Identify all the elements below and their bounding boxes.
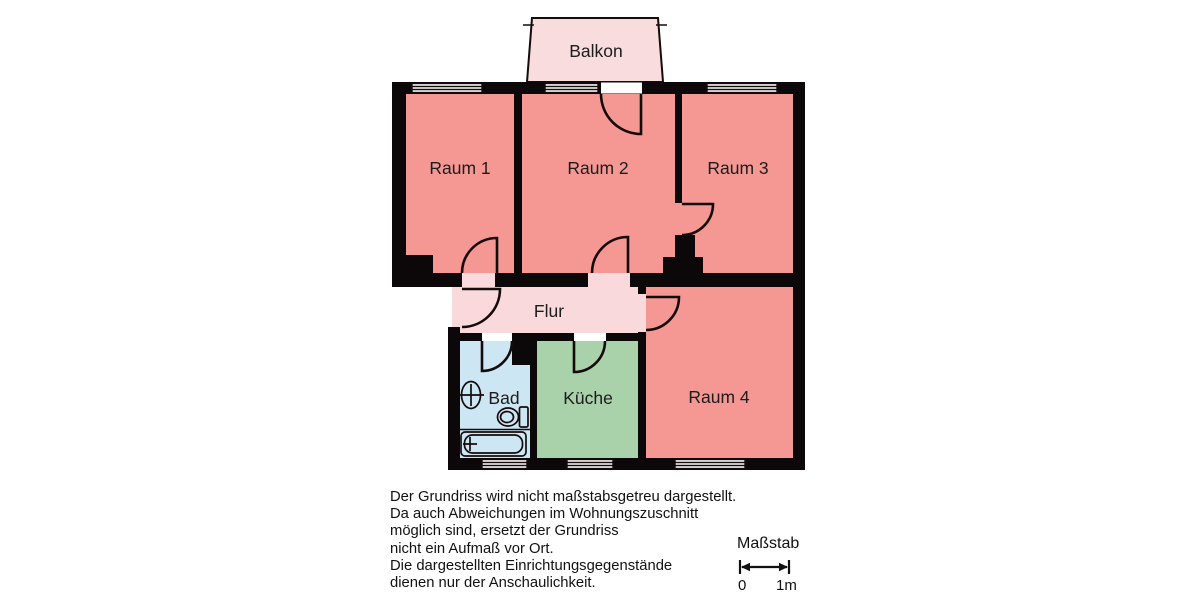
wall-kitchen-raum4-a bbox=[638, 287, 646, 294]
disclaimer-line: Der Grundriss wird nicht maßstabsgetreu … bbox=[390, 489, 736, 506]
scale-zero-label: 0 bbox=[738, 577, 746, 594]
disclaimer-line: nicht ein Aufmaß vor Ort. bbox=[390, 541, 736, 558]
disclaimer-line: dienen nur der Anschaulichkeit. bbox=[390, 575, 736, 592]
scale-one-label: 1m bbox=[776, 577, 797, 594]
wall-chimney-raum1 bbox=[406, 255, 433, 273]
disclaimer-text: Der Grundriss wird nicht maßstabsgetreu … bbox=[390, 489, 736, 592]
wall-left-upper bbox=[392, 82, 406, 273]
floor-plan-page: Balkon bbox=[0, 0, 1200, 600]
wall-middle-c bbox=[630, 273, 805, 287]
scale-arrow-icon bbox=[738, 559, 792, 575]
window-raum1 bbox=[412, 84, 482, 93]
wall-middle-a bbox=[392, 273, 462, 287]
disclaimer-line: Da auch Abweichungen im Wohnungszuschnit… bbox=[390, 506, 736, 523]
label-bad: Bad bbox=[488, 388, 519, 408]
balcony-door-opening bbox=[601, 83, 642, 94]
wall-chimney-block bbox=[663, 257, 703, 273]
wall-raum2-raum3-lower bbox=[675, 235, 695, 257]
window-raum2 bbox=[545, 84, 598, 93]
window-raum4 bbox=[675, 460, 745, 469]
wall-raum2-raum3-upper bbox=[675, 94, 682, 203]
label-raum2: Raum 2 bbox=[567, 158, 628, 178]
wall-bath-block bbox=[512, 341, 530, 365]
label-raum4: Raum 4 bbox=[688, 387, 750, 407]
doorway-raum1 bbox=[462, 273, 495, 287]
window-raum3 bbox=[707, 84, 777, 93]
doorway-raum3 bbox=[675, 203, 682, 235]
balcony-label: Balkon bbox=[569, 41, 623, 61]
room-raum2-fill bbox=[522, 94, 675, 273]
wall-raum1-raum2 bbox=[514, 94, 522, 273]
label-raum1: Raum 1 bbox=[429, 158, 490, 178]
window-bad bbox=[482, 460, 527, 469]
label-flur: Flur bbox=[534, 301, 564, 321]
scale-title: Maßstab bbox=[737, 535, 799, 553]
label-kueche: Küche bbox=[563, 388, 613, 408]
room-raum3-fill bbox=[682, 94, 793, 273]
label-raum3: Raum 3 bbox=[707, 158, 768, 178]
room-raum4-fill bbox=[646, 287, 793, 458]
disclaimer-line: Die dargestellten Einrichtungsgegenständ… bbox=[390, 558, 736, 575]
wall-middle-b bbox=[495, 273, 588, 287]
wall-bath-kitchen bbox=[530, 341, 537, 458]
wall-left-lower bbox=[448, 327, 460, 470]
wall-flur-bottom-b bbox=[512, 333, 574, 341]
wall-kitchen-raum4-b bbox=[638, 332, 646, 458]
disclaimer-line: möglich sind, ersetzt der Grundriss bbox=[390, 523, 736, 540]
doorway-raum4 bbox=[638, 294, 646, 332]
doorway-raum2 bbox=[588, 273, 630, 287]
window-kueche bbox=[567, 460, 613, 469]
balcony: Balkon bbox=[523, 18, 667, 82]
